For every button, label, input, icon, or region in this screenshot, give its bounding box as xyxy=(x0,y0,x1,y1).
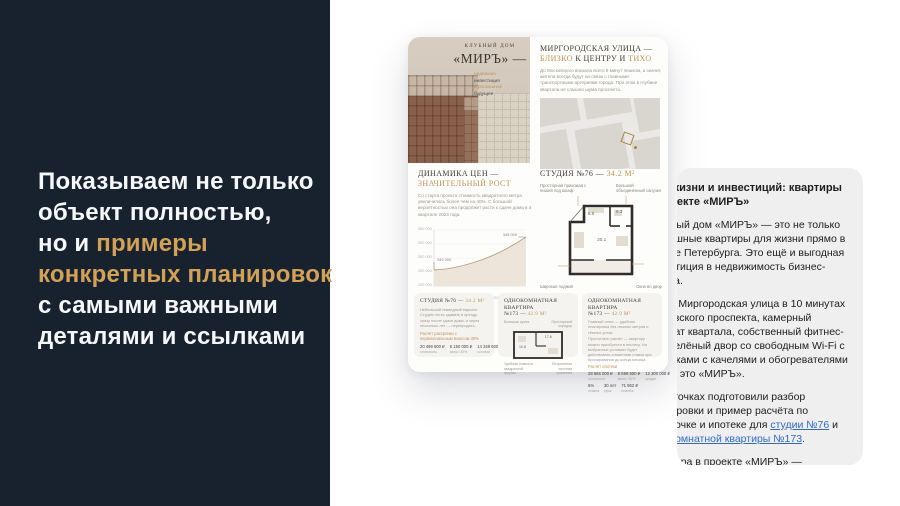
note-text: Для жизни и инвестиций: квартиры в проек… xyxy=(677,181,851,465)
mortgage-card-number: №173 — xyxy=(588,311,610,317)
mortgage-body-1: Главный плюс — удобная планировка без ли… xyxy=(588,319,656,335)
note-heading: Для жизни и инвестиций: квартиры в проек… xyxy=(677,181,851,209)
facade-pattern xyxy=(478,93,530,163)
cover-tag-3: в роскошное xyxy=(474,85,528,92)
room-area-value: 6.3 xyxy=(616,209,622,214)
location-title: МИРГОРОДСКАЯ УЛИЦА — БЛИЗКО К ЦЕНТРУ И Т… xyxy=(540,44,662,64)
map-block xyxy=(631,135,660,169)
apartment-plan-title: ОДНОКОМНАТНАЯ КВАРТИРА№173 — 42.9 М² xyxy=(504,298,572,318)
mortgage-card-area: 42.9 М² xyxy=(611,311,630,317)
mortgage-label: ставка xyxy=(588,389,599,393)
installment-card: СТУДИЯ №76 — 34.2 М² Небольшой ликвидный… xyxy=(414,293,494,357)
presentation-slide: Показываем не только объект полностью, н… xyxy=(0,0,900,506)
headline-line-5: с самыми важными xyxy=(38,290,332,321)
mortgage-label: кредит xyxy=(645,377,670,381)
mortgage-col: 30 летсрок xyxy=(604,383,616,393)
room-area-value: 17.6 xyxy=(545,335,552,339)
note-paragraph-4: Квартира в проекте «МИРЪ» — привлекатель… xyxy=(677,455,851,465)
mortgage-card: ОДНОКОМНАТНАЯ КВАРТИРА№173 — 42.9 М² Гла… xyxy=(582,293,662,357)
installment-col: 20 499 600 ₽стоимость xyxy=(420,344,445,354)
headline-line-2: объект полностью, xyxy=(38,197,332,228)
cover-tag-4: будущее xyxy=(474,92,528,99)
link-apartment-173[interactable]: однокомнатной квартиры №173 xyxy=(677,433,802,445)
location-section: МИРГОРОДСКАЯ УЛИЦА — БЛИЗКО К ЦЕНТРУ И Т… xyxy=(540,44,662,169)
mortgage-label: срок xyxy=(604,389,616,393)
map-block xyxy=(582,98,633,120)
headline-line-3-white: но и xyxy=(38,230,96,257)
mortgage-col: 6%ставка xyxy=(588,383,599,393)
chart-end-value: 345 000 xyxy=(503,232,517,237)
price-chart: 400 000 350 000 300 000 250 000 200 000 … xyxy=(418,222,530,300)
map-marker-dot xyxy=(634,146,637,149)
note-paragraph-2: Тихая Миргородская улица в 10 минутах от… xyxy=(677,297,851,381)
note-p3-post: . xyxy=(802,433,805,445)
cover-tag-2: инвестиция xyxy=(474,79,528,86)
mortgage-values-row1: 28 665 000 ₽стоимость 8 599 500 ₽взнос 3… xyxy=(588,371,656,381)
plan-annotations-top: Просторная прихожая с нишей под шкаф Бол… xyxy=(540,183,662,194)
chart-start-value: 249 000 xyxy=(437,257,451,262)
mortgage-card-title: ОДНОКОМНАТНАЯ КВАРТИРА№173 — 42.9 М² xyxy=(588,298,656,318)
cover-tagline: надёжная инвестиция в роскошное будущее xyxy=(474,72,528,98)
installment-values: 20 499 600 ₽стоимость 6 150 000 ₽взнос 3… xyxy=(420,344,488,354)
plan-annotations-bottom: Широкая лоджия Окна во двор xyxy=(540,284,662,289)
apartment-floor-plan: 10.6 17.6 xyxy=(510,330,566,360)
mortgage-value: 6% xyxy=(588,383,599,388)
apartment-plan-name: ОДНОКОМНАТНАЯ КВАРТИРА xyxy=(504,298,557,311)
installment-value: 6 150 000 ₽ xyxy=(450,344,472,349)
installment-label: стоимость xyxy=(420,350,445,354)
mortgage-col: 8 599 500 ₽взнос 30% xyxy=(618,371,640,381)
headline-line-1: Показываем не только xyxy=(38,166,332,197)
location-title-gold2: ТИХО xyxy=(628,54,651,63)
price-title-line2: ЗНАЧИТЕЛЬНЫЙ РОСТ xyxy=(418,179,532,189)
annotation-kitchen: Большая кухня xyxy=(504,320,530,329)
mortgage-label: стоимость xyxy=(588,377,613,381)
y-tick: 400 000 xyxy=(418,227,432,231)
location-title-mid: К ЦЕНТРУ И xyxy=(573,54,628,63)
brochure-card: КЛУБНЫЙ ДОМ «МИРЪ» — надёжная инвестиция… xyxy=(408,37,668,372)
installment-col: 6 150 000 ₽взнос 30% xyxy=(450,344,472,354)
installment-card-name: СТУДИЯ №76 — xyxy=(420,298,464,304)
cover-title: «МИРЪ» — xyxy=(452,51,528,67)
installment-card-title: СТУДИЯ №76 — 34.2 М² xyxy=(420,298,488,305)
location-body: До Московского вокзала всего 5 минут пеш… xyxy=(540,68,662,93)
link-studio-76[interactable]: студии №76 xyxy=(770,419,829,431)
building-photo: КЛУБНЫЙ ДОМ «МИРЪ» — надёжная инвестиция… xyxy=(408,37,530,163)
cover-eyebrow: КЛУБНЫЙ ДОМ xyxy=(452,44,528,49)
district-map xyxy=(540,98,660,169)
y-tick: 200 000 xyxy=(418,283,432,287)
installment-card-body: Небольшой ликвидный вариант. Студию легк… xyxy=(420,307,488,328)
location-title-line2: БЛИЗКО К ЦЕНТРУ И ТИХО xyxy=(540,54,662,64)
mortgage-value: 30 лет xyxy=(604,383,616,388)
price-section: ДИНАМИКА ЦЕН — ЗНАЧИТЕЛЬНЫЙ РОСТ Со стар… xyxy=(418,169,532,300)
studio-plan-title: СТУДИЯ №76 — 34.2 М² xyxy=(540,169,662,179)
map-block xyxy=(540,129,573,169)
studio-plan-section: СТУДИЯ №76 — 34.2 М² Просторная прихожая… xyxy=(540,169,662,289)
studio-plan-name: СТУДИЯ №76 — xyxy=(540,169,604,178)
mortgage-calc-title: Расчёт ипотеки xyxy=(588,364,656,369)
note-card: Для жизни и инвестиций: квартиры в проек… xyxy=(677,168,863,465)
studio-plan-area: 34.2 М² xyxy=(607,169,635,178)
mortgage-value: 8 599 500 ₽ xyxy=(618,371,640,376)
headline-line-3: но и примеры xyxy=(38,228,332,259)
slide-headline: Показываем не только объект полностью, н… xyxy=(38,166,332,352)
mortgage-body-2: Просчитали расчёт — квартиру можно приоб… xyxy=(588,336,656,362)
headline-line-6: деталями и ссылками xyxy=(38,321,332,352)
mortgage-col: 71 962 ₽платёж xyxy=(621,383,638,393)
headline-line-3-gold: примеры xyxy=(96,230,208,257)
room-area-value: 20.1 xyxy=(597,237,606,242)
price-title: ДИНАМИКА ЦЕН — ЗНАЧИТЕЛЬНЫЙ РОСТ xyxy=(418,169,532,189)
annotation-hallway: Просторная прихожая с нишей под шкаф xyxy=(540,183,590,194)
note-p3-mid: и xyxy=(829,419,838,431)
installment-card-area: 34.2 М² xyxy=(465,298,484,304)
map-block xyxy=(633,98,660,133)
map-block xyxy=(540,98,581,128)
mortgage-label: взнос 30% xyxy=(618,377,640,381)
map-block xyxy=(574,122,629,169)
price-body: Со старта проекта стоимость квадратного … xyxy=(418,193,532,218)
mortgage-card-name: ОДНОКОМНАТНАЯ КВАРТИРА xyxy=(588,298,641,311)
annotation-storage: Встроенная система хранения xyxy=(542,362,572,376)
note-paragraph-1: Клубный дом «МИРЪ» — это не только роско… xyxy=(677,218,851,288)
mortgage-values-row2: 6%ставка 30 летсрок 71 962 ₽платёж xyxy=(588,383,656,393)
mortgage-value: 12 300 000 ₽ xyxy=(645,371,670,376)
cover-text: КЛУБНЫЙ ДОМ «МИРЪ» — надёжная инвестиция… xyxy=(452,44,528,98)
apartment-annotations-top: Большая кухня Просторный коридор xyxy=(504,320,572,329)
apartment-plan-number: №173 — xyxy=(504,311,526,317)
apartment-plan-card: ОДНОКОМНАТНАЯ КВАРТИРА№173 — 42.9 М² Бол… xyxy=(498,293,578,357)
location-title-line1: МИРГОРОДСКАЯ УЛИЦА — xyxy=(540,44,662,54)
annotation-bathroom: Большой объединённый санузел xyxy=(616,183,662,194)
headline-line-4: конкретных планировок xyxy=(38,259,332,290)
note-paragraph-3: В карточках подготовили разбор планировк… xyxy=(677,390,851,446)
annotation-loggia: Широкая лоджия xyxy=(540,284,573,289)
left-panel: Показываем не только объект полностью, н… xyxy=(0,0,330,506)
mortgage-value: 28 665 000 ₽ xyxy=(588,371,613,376)
annotation-room: Удобная комната квадратной формы xyxy=(504,362,536,376)
mortgage-col: 12 300 000 ₽кредит xyxy=(645,371,670,381)
room-area-value: 10.6 xyxy=(519,345,526,349)
cover-tag-1: надёжная xyxy=(474,72,528,79)
annotation-corridor: Просторный коридор xyxy=(542,320,572,329)
apartment-plan-area: 42.9 М² xyxy=(527,311,546,317)
location-title-gold1: БЛИЗКО xyxy=(540,54,573,63)
installment-calc-title: Расчёт рассрочки с первоначальным взносо… xyxy=(420,331,488,341)
installment-value: 20 499 600 ₽ xyxy=(420,344,445,349)
mortgage-label: платёж xyxy=(621,389,638,393)
mortgage-col: 28 665 000 ₽стоимость xyxy=(588,371,613,381)
y-tick: 250 000 xyxy=(418,269,432,273)
annotation-windows: Окна во двор xyxy=(636,284,662,289)
room-area-value: 6.6 xyxy=(588,211,594,216)
price-title-line1: ДИНАМИКА ЦЕН — xyxy=(418,169,532,179)
installment-label: взнос 30% xyxy=(450,350,472,354)
apartment-annotations-bottom: Удобная комната квадратной формы Встроен… xyxy=(504,362,572,376)
studio-floor-plan: 6.6 6.3 20.1 xyxy=(554,196,648,282)
mortgage-value: 71 962 ₽ xyxy=(621,383,638,388)
y-tick: 350 000 xyxy=(418,241,432,245)
note-p4-text: Квартира в проекте «МИРЪ» — привлекатель… xyxy=(677,456,849,465)
y-tick: 300 000 xyxy=(418,255,432,259)
